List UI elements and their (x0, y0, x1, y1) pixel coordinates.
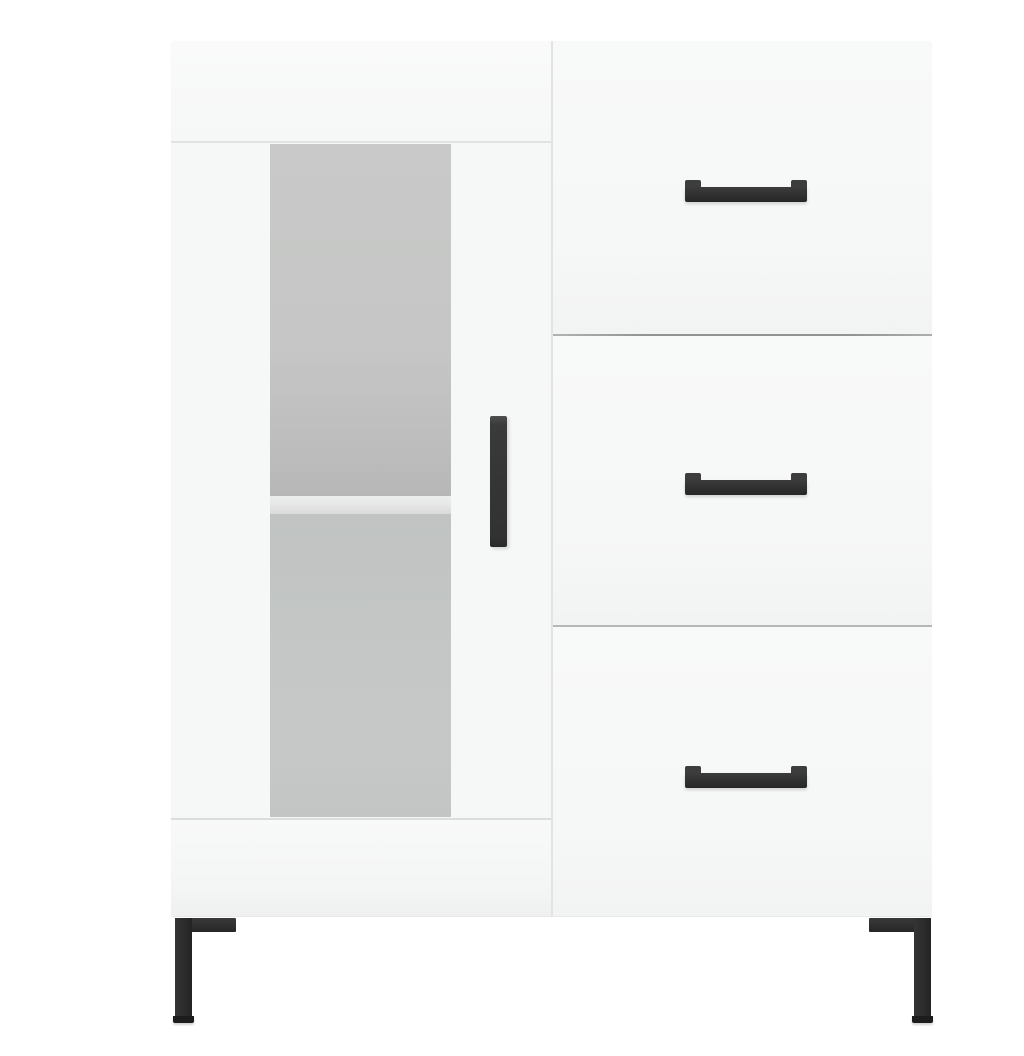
cabinet-body (171, 41, 932, 917)
pull-bar (685, 480, 807, 495)
glass-upper-region (270, 144, 451, 496)
leg-foot (912, 1016, 933, 1023)
pull-bar (685, 187, 807, 202)
glass-door (171, 143, 551, 820)
leg-post (914, 918, 931, 1023)
drawer-pull-2 (685, 473, 807, 495)
drawer-pull-3 (685, 766, 807, 788)
top-rail (171, 41, 551, 143)
shelf-edge (270, 496, 451, 514)
leg-foot (173, 1016, 194, 1023)
drawer-section (553, 41, 932, 916)
image-caption: White sideboard cabinet with a frosted g… (40, 16, 41, 17)
bottom-rail (171, 820, 551, 916)
drawer-pull-1 (685, 180, 807, 202)
leg-post (175, 918, 192, 1023)
product-photo: White sideboard cabinet with a frosted g… (40, 16, 1024, 1040)
pull-bar (685, 773, 807, 788)
glass-lower-region (270, 514, 451, 817)
glass-door-section (171, 41, 551, 916)
front-left-leg (175, 918, 236, 1023)
glass-panel (270, 144, 451, 817)
door-handle (490, 416, 507, 547)
front-right-leg (869, 918, 931, 1023)
